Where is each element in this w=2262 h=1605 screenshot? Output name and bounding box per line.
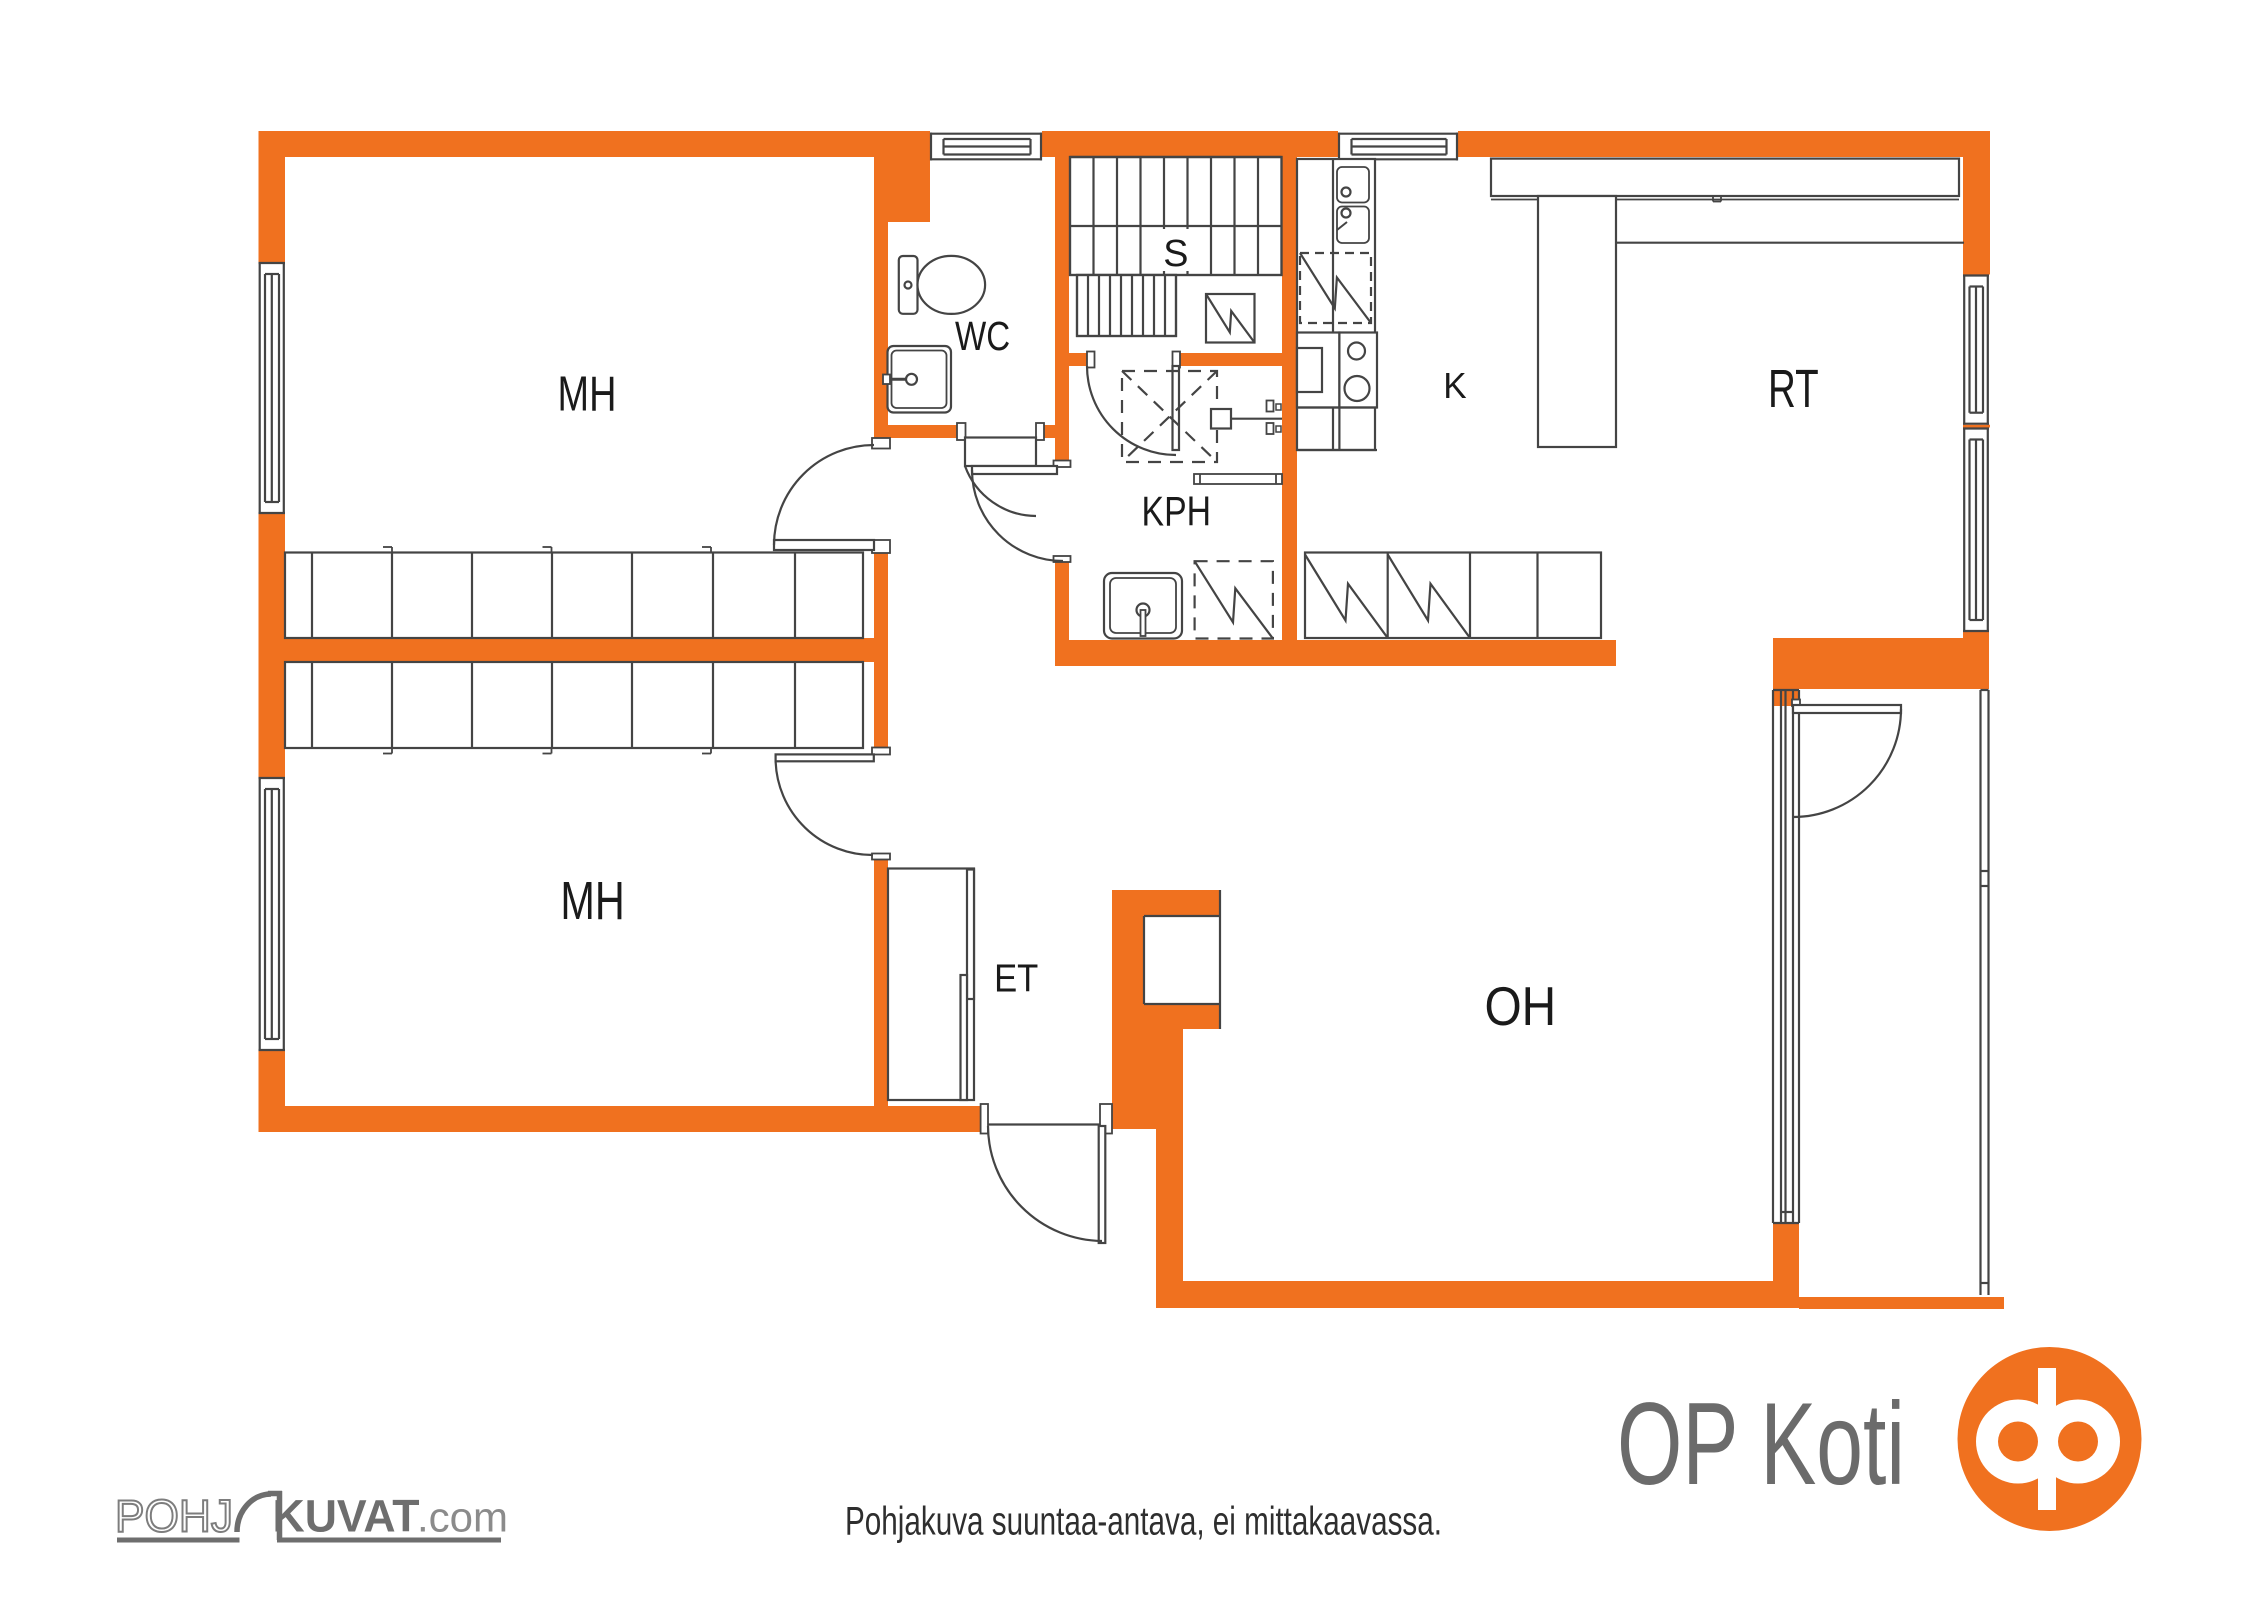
svg-text:POHJ: POHJ [115, 1491, 233, 1542]
svg-text:MH: MH [558, 366, 617, 421]
svg-text:K: K [1443, 365, 1466, 406]
svg-text:KUVAT: KUVAT [273, 1491, 420, 1542]
svg-text:RT: RT [1768, 359, 1819, 419]
svg-text:OP Koti: OP Koti [1617, 1378, 1905, 1509]
svg-text:OH: OH [1484, 975, 1556, 1037]
svg-text:.com: .com [417, 1494, 508, 1541]
svg-text:MH: MH [560, 871, 624, 931]
svg-text:WC: WC [955, 313, 1010, 359]
svg-text:Pohjakuva suuntaa-antava, ei m: Pohjakuva suuntaa-antava, ei mittakaavas… [845, 1499, 1442, 1543]
svg-text:S: S [1163, 232, 1188, 274]
svg-text:KPH: KPH [1142, 489, 1212, 535]
svg-text:ET: ET [994, 958, 1038, 1001]
